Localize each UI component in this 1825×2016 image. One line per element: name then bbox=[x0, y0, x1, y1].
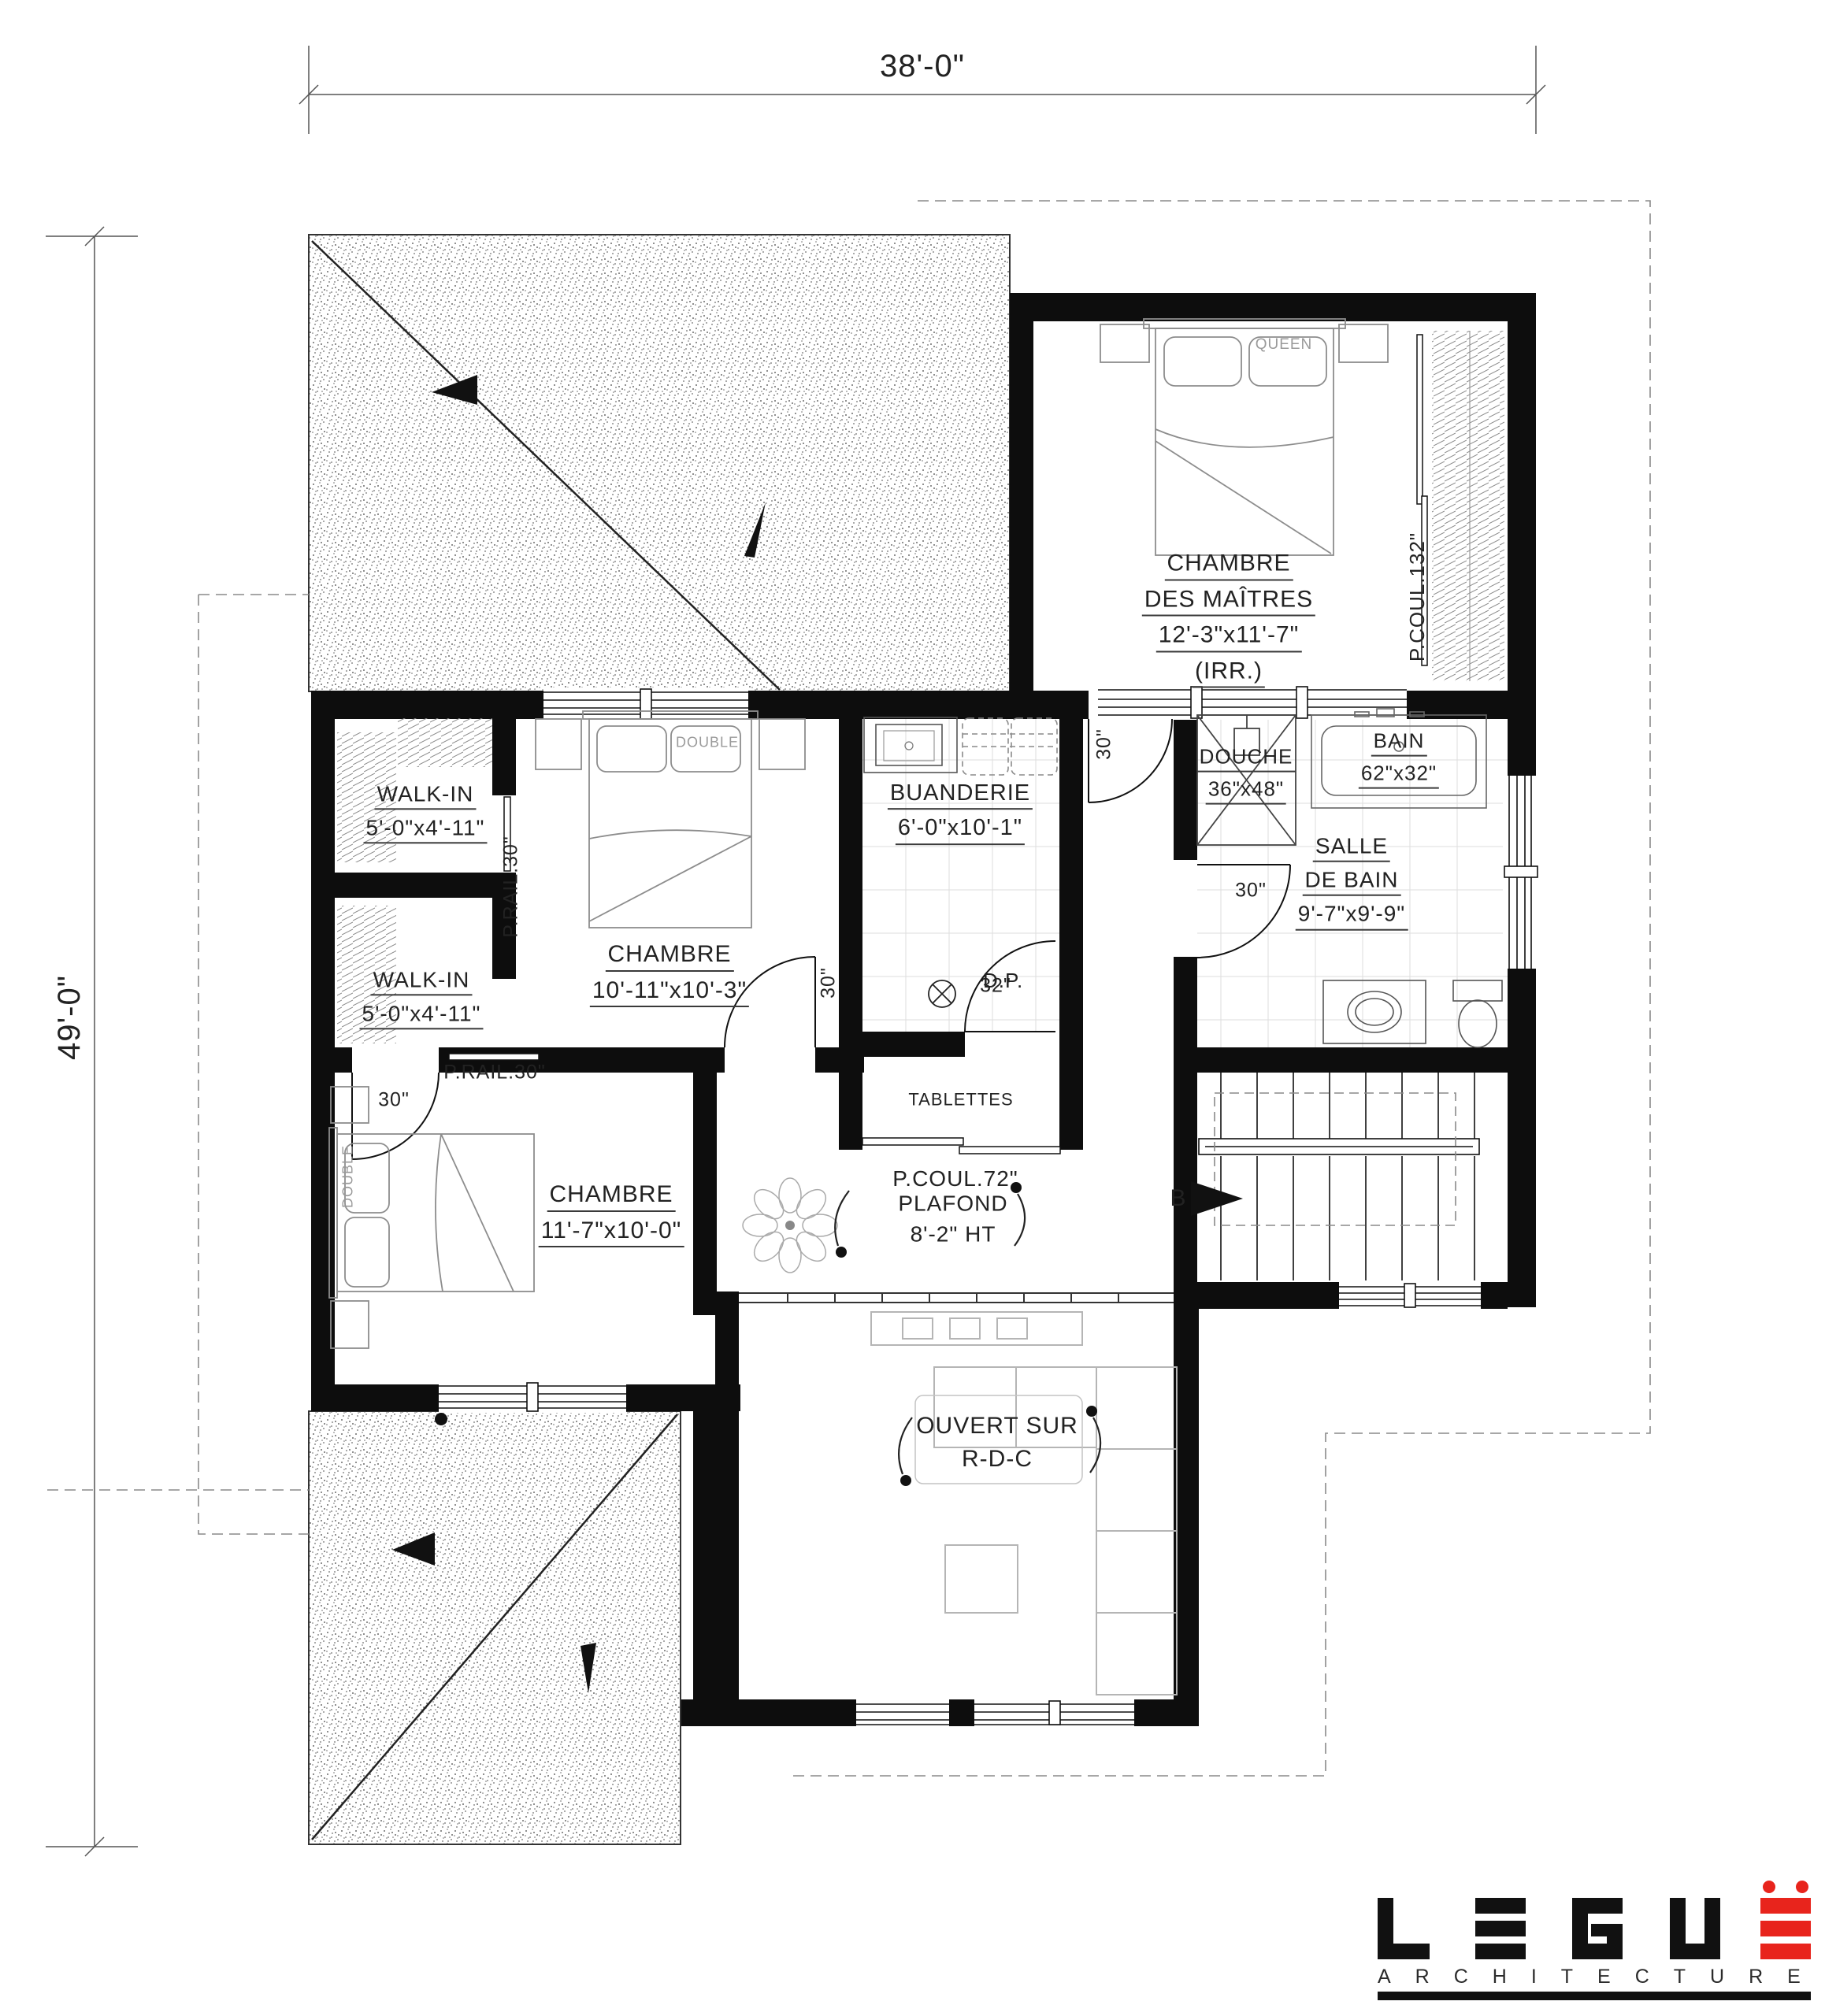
rail-label-walk-in-2: P.RAIL.30" bbox=[443, 1062, 546, 1084]
bed-size-double-1: DOUBLE bbox=[676, 735, 739, 751]
door-width-bedroom-2: 30" bbox=[818, 967, 840, 999]
dimension-width: 38'-0" bbox=[880, 48, 965, 84]
door-width-bathroom: 30" bbox=[1235, 880, 1267, 902]
floor-drain-icon bbox=[929, 980, 955, 1007]
floor-plan-sheet: 38'-0" 49'-0" CHAMBRE DES MAÎTRES 12'-3"… bbox=[0, 0, 1825, 2016]
room-label-bedroom-2: CHAMBRE 10'-11"x10'-3" bbox=[590, 941, 749, 1007]
vanity-toilet bbox=[1323, 980, 1502, 1047]
laundry-fixtures bbox=[864, 717, 1057, 775]
room-label-laundry: BUANDERIE 6'-0"x10'-1" bbox=[888, 780, 1033, 845]
room-label-bedroom-3: CHAMBRE 11'-7"x10'-0" bbox=[539, 1181, 684, 1247]
closet-door-label-hall: P.COUL.72" bbox=[892, 1166, 1018, 1191]
drain-label: D.P. bbox=[983, 969, 1023, 993]
bed-size-double-2: DOUBLE bbox=[340, 1145, 357, 1208]
logo-subtitle: ARCHITECTURE bbox=[1378, 1966, 1819, 1988]
room-label-walk-in-2: WALK-IN 5'-0"x4'-11" bbox=[359, 967, 483, 1029]
ceiling-note: PLAFOND 8'-2" HT bbox=[898, 1191, 1007, 1247]
bed-double-2 bbox=[329, 1087, 534, 1348]
sofa-sketch bbox=[871, 1312, 1177, 1695]
section-marker-triangle bbox=[1191, 1181, 1243, 1216]
room-label-bathroom: SALLE DE BAIN 9'-7"x9'-9" bbox=[1296, 834, 1408, 931]
bed-double-1 bbox=[536, 711, 805, 928]
shelves-label: TABLETTES bbox=[908, 1089, 1013, 1109]
roof-hatch-lower bbox=[309, 1411, 681, 1844]
roof-hatch-upper bbox=[309, 235, 1010, 691]
room-label-bath: BAIN 62"x32" bbox=[1359, 730, 1439, 789]
plant-icon bbox=[743, 1178, 837, 1273]
open-to-below-note: OUVERT SUR R-D-C bbox=[916, 1413, 1078, 1473]
section-marker-label: B bbox=[1170, 1185, 1186, 1213]
door-width-bedroom-3: 30" bbox=[378, 1089, 410, 1112]
dimension-height: 49'-0" bbox=[51, 975, 87, 1060]
rail-label-walk-in-1: P.RAIL.30" bbox=[500, 836, 523, 938]
stairs bbox=[1199, 1073, 1479, 1280]
floor-plan-linework bbox=[0, 0, 1825, 2016]
room-label-walk-in-1: WALK-IN 5'-0"x4'-11" bbox=[363, 781, 487, 843]
bed-size-queen: QUEEN bbox=[1256, 336, 1313, 354]
logo-mark bbox=[1378, 1881, 1811, 1959]
door-width-master: 30" bbox=[1093, 728, 1116, 760]
logo-underline bbox=[1378, 1992, 1811, 2000]
closet-label-master: P.COUL.132" bbox=[1406, 532, 1430, 661]
bed-queen bbox=[1100, 319, 1388, 555]
column-dot bbox=[435, 1413, 447, 1425]
railing bbox=[739, 1293, 1174, 1303]
room-label-shower: DOUCHE 36"x48" bbox=[1197, 746, 1296, 805]
room-label-master-bedroom: CHAMBRE DES MAÎTRES 12'-3"x11'-7" (IRR.) bbox=[1142, 550, 1315, 688]
